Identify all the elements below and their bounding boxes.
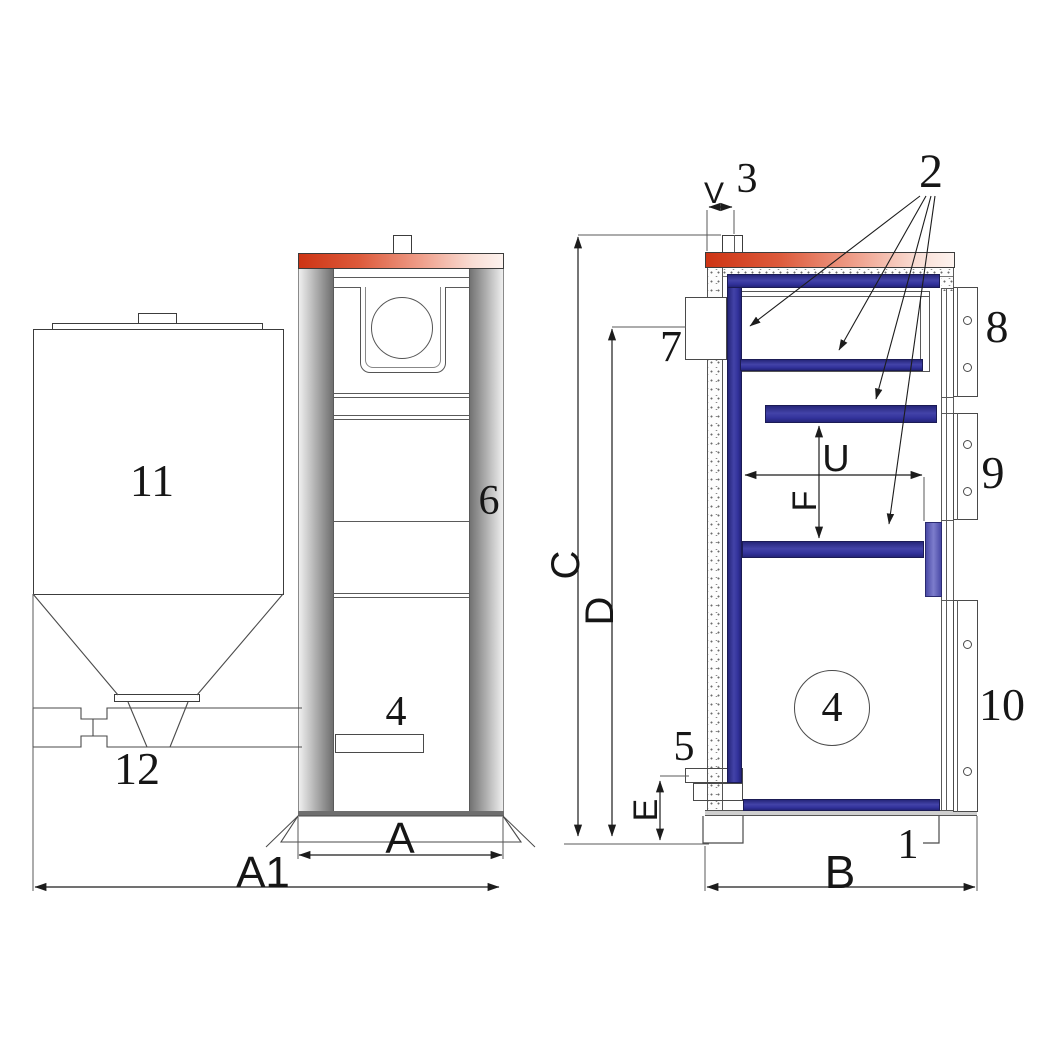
door-8-bolt-hole — [963, 316, 972, 325]
front-panel-divider — [333, 597, 470, 598]
water-jacket-bottom-bar — [743, 799, 940, 811]
front-panel-divider — [333, 415, 470, 416]
front-chimney-stub — [393, 235, 412, 254]
front-flue-circle — [371, 297, 433, 359]
door-9-bolt-hole — [963, 487, 972, 496]
front-panel-divider — [333, 419, 470, 420]
front-panel-divider — [333, 397, 470, 398]
side-door-9-hinge-line — [957, 413, 958, 520]
heat-exchanger-inner-top-line — [740, 296, 930, 297]
part-label-7: 7 — [660, 325, 682, 369]
door-10-bolt-hole — [963, 767, 972, 776]
front-right-column — [469, 268, 504, 813]
dim-label-A1: A1 — [236, 851, 290, 895]
baffle-plate-lower — [742, 541, 924, 558]
hopper-cone-lines — [33, 594, 302, 747]
part-label-9: 9 — [982, 450, 1005, 496]
door-connector-line — [941, 397, 953, 398]
dim-label-D: D — [580, 597, 620, 626]
part-label-10: 10 — [979, 682, 1025, 728]
part-label-4-side: 4 — [822, 687, 843, 729]
dim-label-U: U — [822, 440, 849, 478]
front-panel-divider — [333, 593, 470, 594]
dim-label-C: C — [546, 551, 586, 580]
burner-unit-box — [685, 297, 727, 360]
dim-label-B: B — [825, 849, 856, 895]
front-panel-divider — [333, 521, 470, 522]
technical-drawing-canvas: 11 12 6 4 2 3 7 8 9 10 5 1 4 A A1 B C D … — [0, 0, 1051, 1051]
door-10-bolt-hole — [963, 640, 972, 649]
dim-label-E: E — [629, 799, 663, 822]
door-connector-line — [941, 413, 953, 414]
part-label-6: 6 — [479, 480, 500, 522]
dim-label-V: V — [704, 179, 724, 209]
part-label-12: 12 — [114, 746, 160, 792]
front-top-band-line — [333, 277, 470, 278]
part-label-5: 5 — [674, 726, 695, 768]
door-connector-line — [941, 600, 953, 601]
side-door-8-hinge-line — [957, 287, 958, 397]
side-chimney-midline — [734, 235, 735, 253]
water-jacket-top-bar — [727, 274, 940, 288]
part-label-2: 2 — [919, 148, 943, 196]
front-top-plate — [298, 253, 504, 269]
dim-label-F: F — [788, 491, 822, 512]
part-label-11: 11 — [130, 458, 174, 504]
door-8-bolt-hole — [963, 363, 972, 372]
side-right-wall-line — [946, 288, 947, 811]
front-ash-slot — [335, 734, 424, 753]
cleanout-box-lower — [693, 783, 743, 801]
side-chimney-stub — [722, 235, 743, 253]
side-top-plate — [705, 252, 955, 268]
baffle-plate-upper — [740, 359, 923, 371]
part-label-8: 8 — [986, 304, 1009, 350]
part-label-4-front: 4 — [386, 691, 407, 733]
side-vertical-plate — [925, 522, 942, 597]
hopper-cone-flange — [114, 694, 200, 702]
door-connector-line — [941, 288, 953, 289]
dim-label-A: A — [385, 817, 414, 861]
front-left-column — [298, 268, 333, 813]
baffle-plate-floating — [765, 405, 937, 423]
door-connector-line — [941, 520, 953, 521]
front-panel-divider — [333, 393, 470, 394]
side-door-10-hinge-line — [957, 600, 958, 812]
part-label-1: 1 — [898, 824, 919, 866]
part-label-3: 3 — [737, 158, 758, 200]
door-9-bolt-hole — [963, 440, 972, 449]
